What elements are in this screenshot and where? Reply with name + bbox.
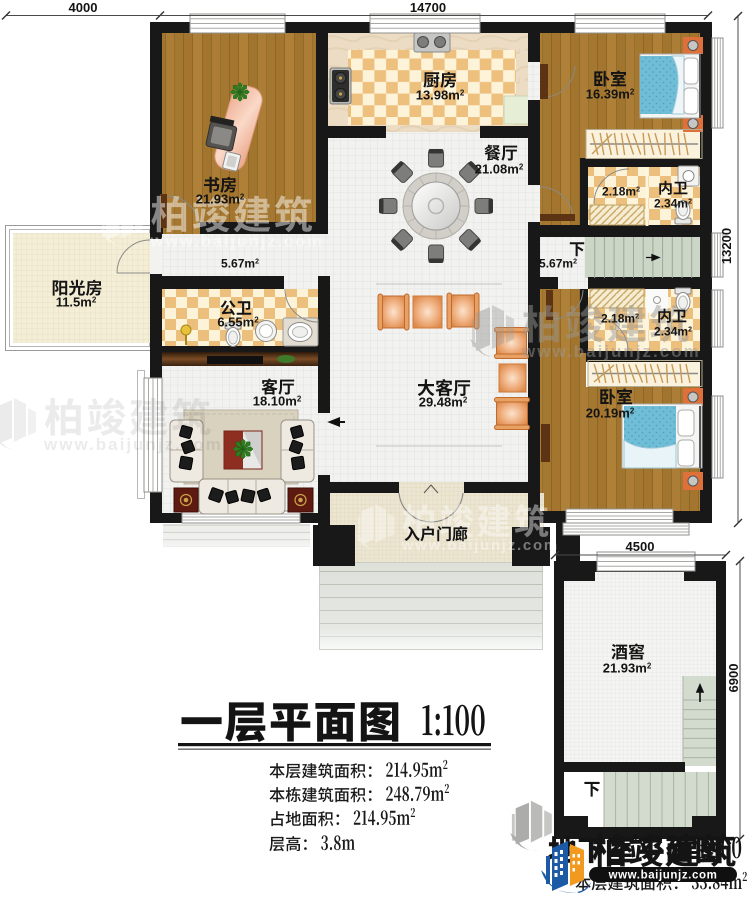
svg-text:29.48m2: 29.48m2	[419, 395, 468, 410]
svg-text:13200: 13200	[719, 228, 734, 264]
svg-text:13.98m2: 13.98m2	[416, 88, 465, 103]
svg-text:5.67m2: 5.67m2	[539, 256, 577, 270]
svg-text:18.10m2: 18.10m2	[253, 394, 302, 409]
svg-text:11.5m2: 11.5m2	[56, 295, 97, 310]
svg-text:6900: 6900	[726, 664, 741, 693]
svg-text:www.baijunjz.com: www.baijunjz.com	[608, 870, 718, 882]
svg-text:www.baijunjz.com: www.baijunjz.com	[149, 232, 323, 250]
svg-text:21.93m2: 21.93m2	[196, 192, 245, 207]
svg-text:4000: 4000	[69, 0, 98, 15]
svg-text:21.93m2: 21.93m2	[603, 661, 652, 676]
svg-text:www.baijunjz.com: www.baijunjz.com	[401, 537, 559, 554]
svg-text:14700: 14700	[410, 0, 446, 15]
svg-text:4500: 4500	[626, 539, 655, 554]
svg-text:www.baijunjz.com: www.baijunjz.com	[43, 435, 223, 454]
svg-text:16.39m2: 16.39m2	[586, 87, 635, 102]
svg-text:20.19m2: 20.19m2	[586, 406, 635, 421]
svg-text:2.34m2: 2.34m2	[654, 324, 692, 338]
svg-text:2.18m2: 2.18m2	[601, 311, 639, 325]
svg-text:2.18m2: 2.18m2	[602, 184, 640, 198]
svg-text:5.67m2: 5.67m2	[221, 256, 259, 270]
svg-text:www.baijunjz.com: www.baijunjz.com	[521, 342, 701, 361]
svg-text:2.34m2: 2.34m2	[654, 196, 692, 210]
svg-text:21.08m2: 21.08m2	[475, 162, 524, 177]
svg-text:6.55m2: 6.55m2	[217, 315, 259, 330]
